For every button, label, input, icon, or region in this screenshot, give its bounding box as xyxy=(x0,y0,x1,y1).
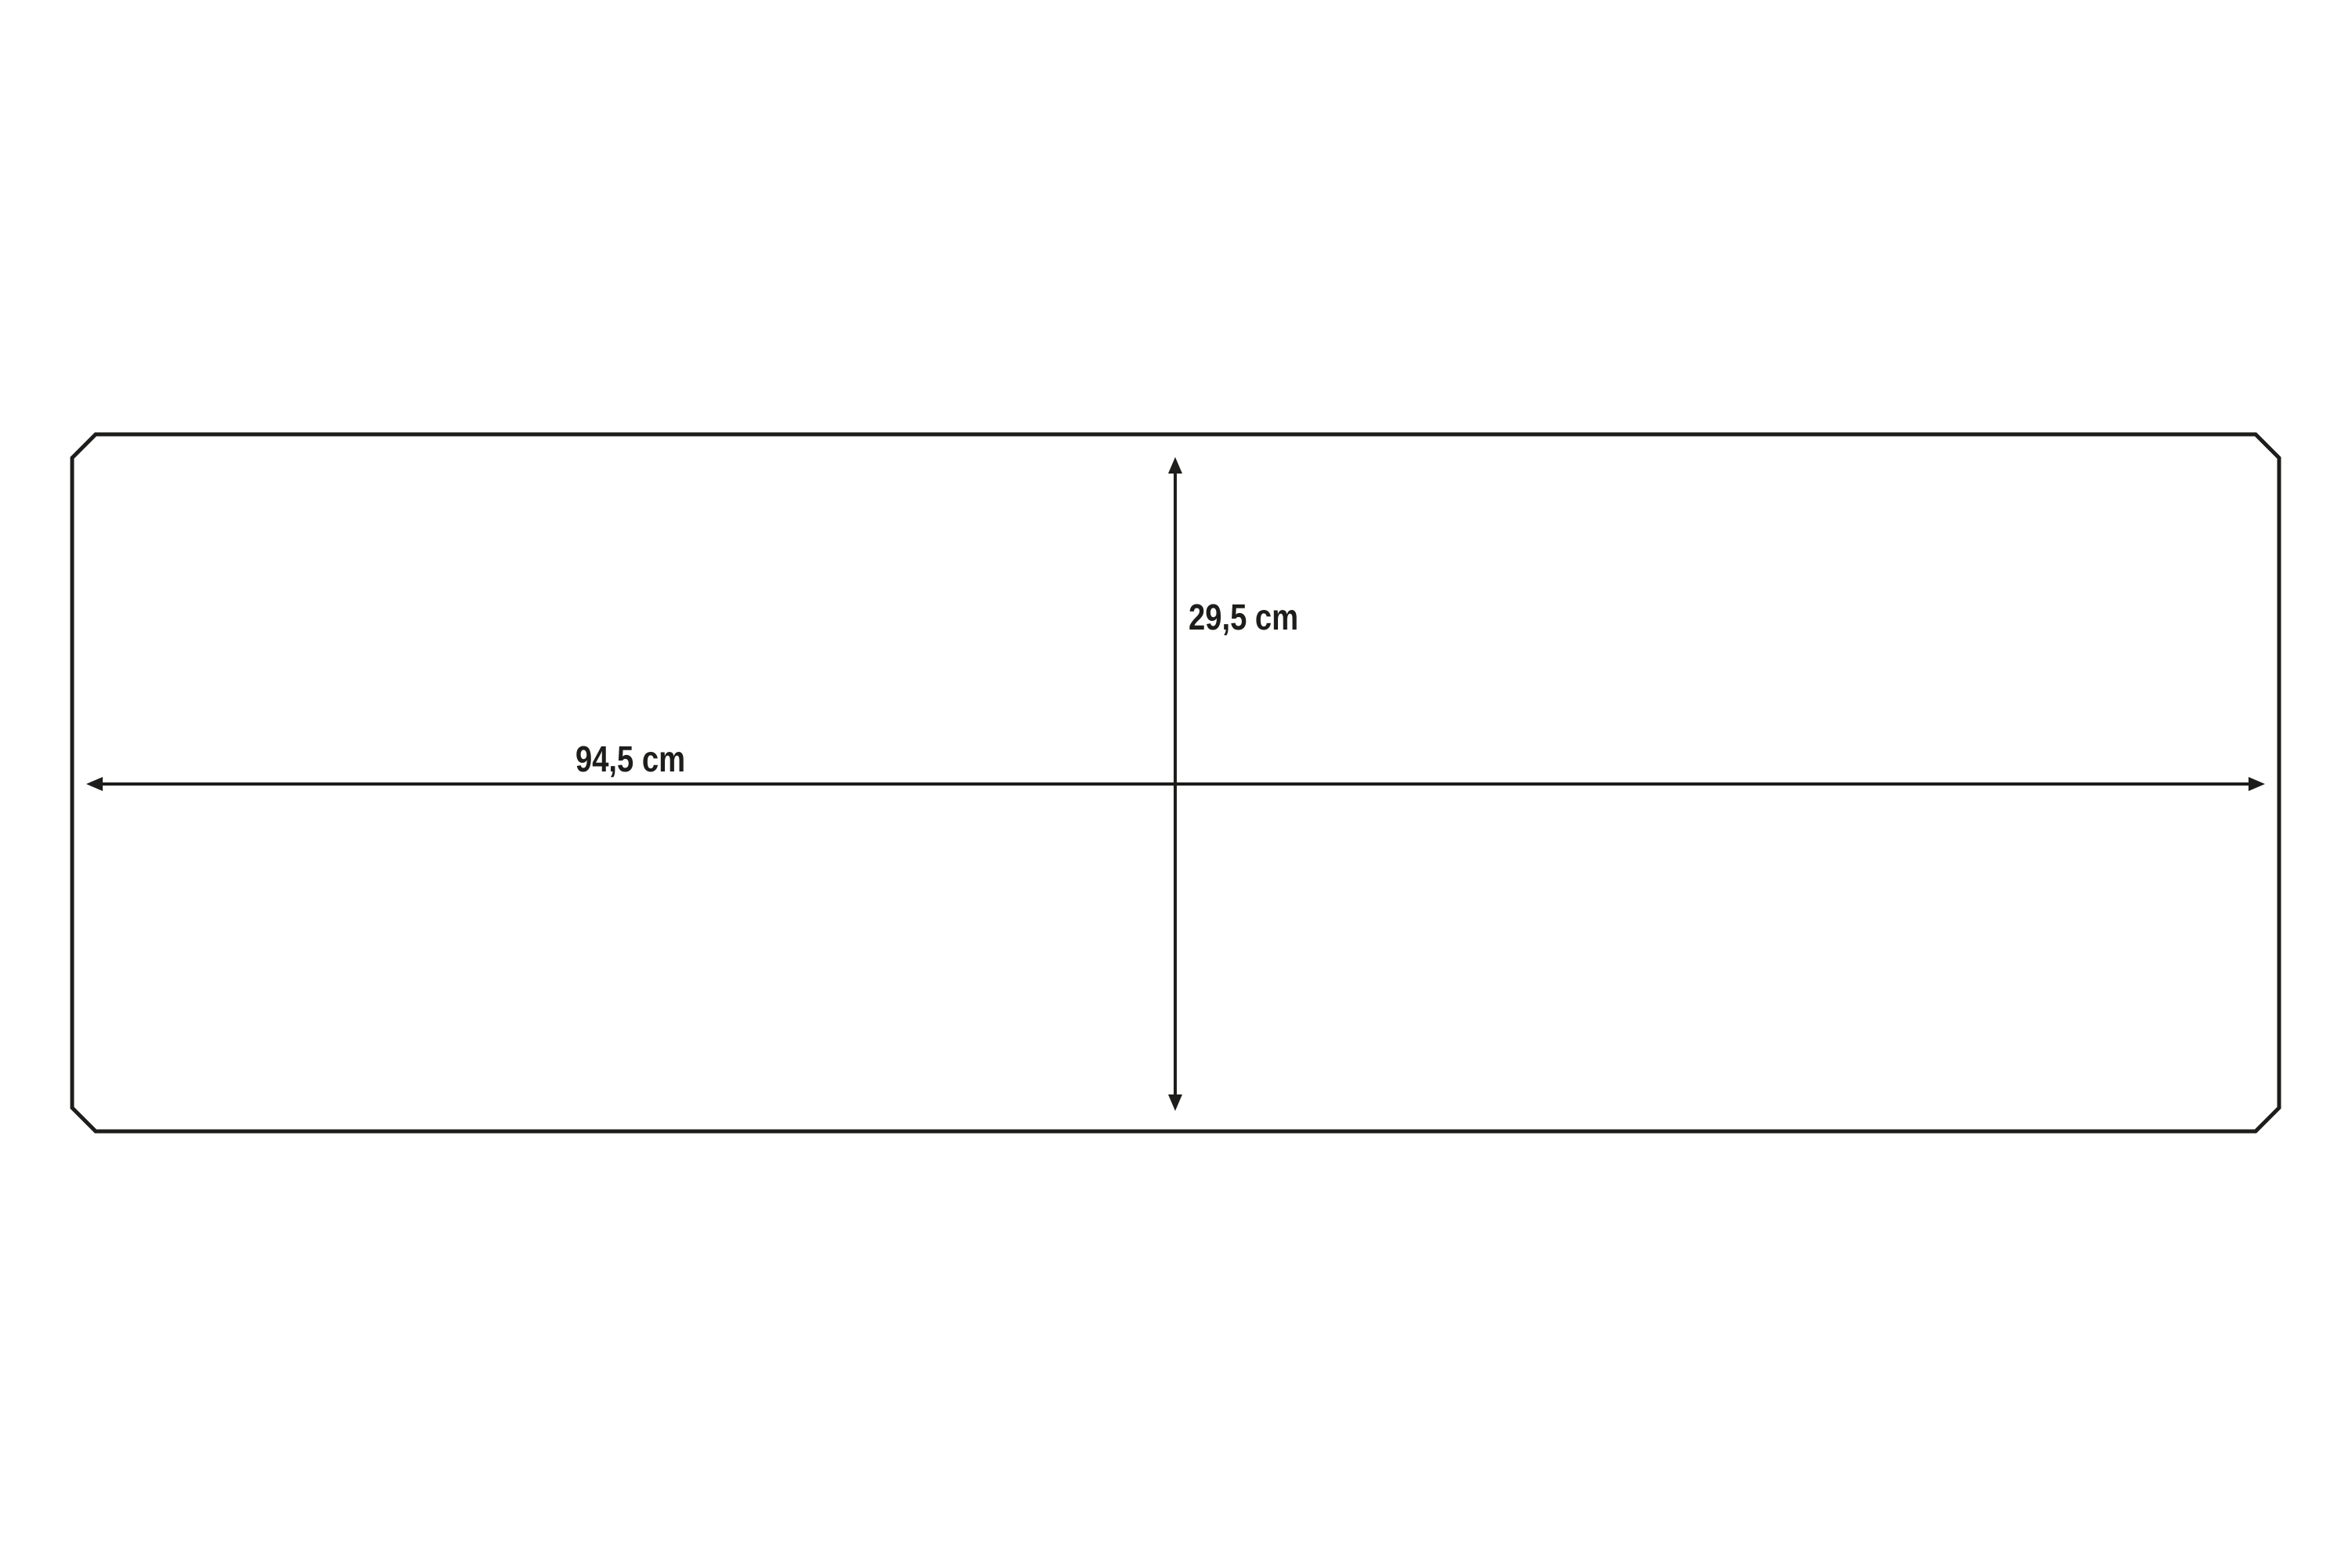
dimension-diagram-page: 94,5 cm 29,5 cm xyxy=(0,0,2352,1568)
down-arrowhead-icon xyxy=(1168,1094,1182,1111)
width-dimension-label: 94,5 cm xyxy=(575,739,685,779)
right-arrowhead-icon xyxy=(2249,777,2265,791)
up-arrowhead-icon xyxy=(1168,457,1182,474)
left-arrowhead-icon xyxy=(86,777,103,791)
height-dimension-label: 29,5 cm xyxy=(1189,597,1298,637)
panel-dimension-diagram: 94,5 cm 29,5 cm xyxy=(0,0,2352,1568)
